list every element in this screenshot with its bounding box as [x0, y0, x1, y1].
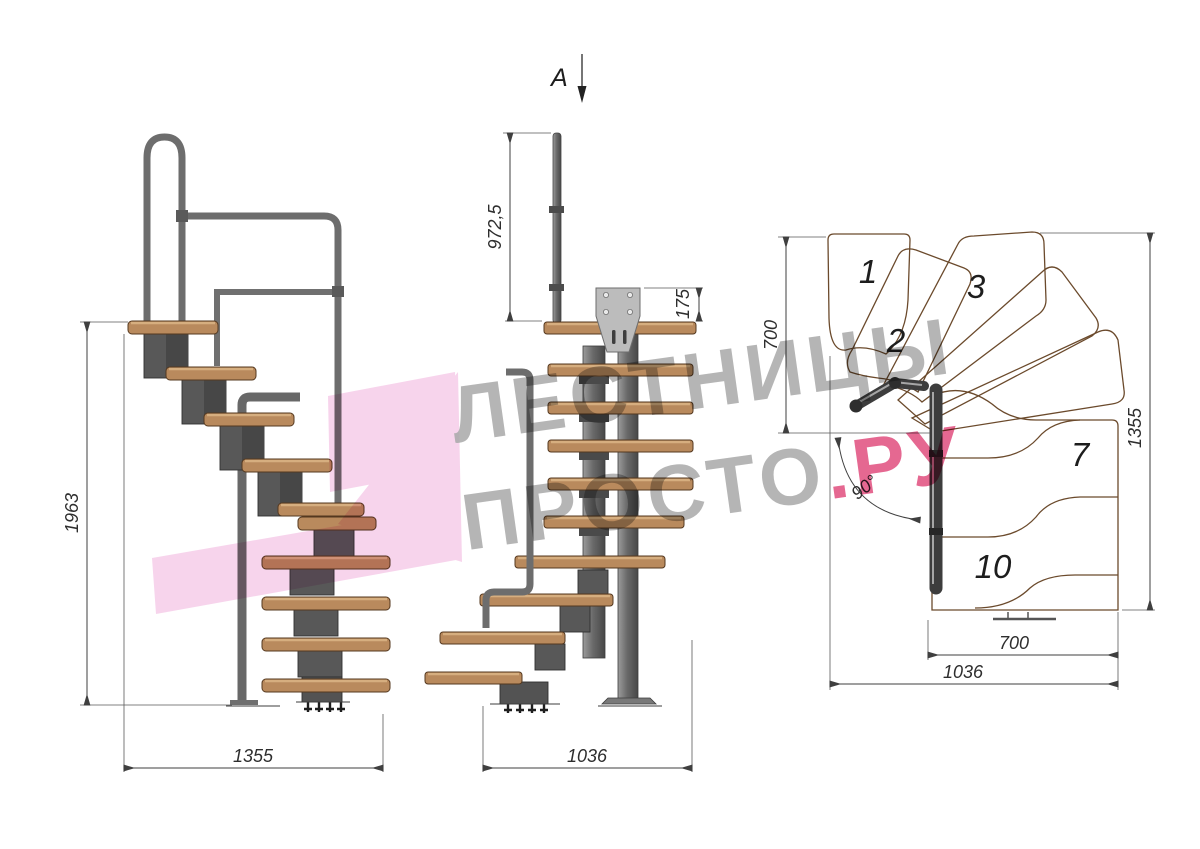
lower-flight-treads [932, 391, 1118, 610]
module [578, 570, 608, 594]
step-number-1: 1 [859, 253, 877, 290]
bracket-hole [627, 309, 632, 314]
section-marker: A [549, 54, 587, 103]
bracket-slot [612, 330, 616, 344]
base-module [500, 682, 548, 704]
bracket-slot [623, 330, 627, 344]
handrail-joint [929, 450, 943, 457]
module [560, 606, 590, 632]
plan-view: 1 2 3 7 10 700 1355 700 1036 90° [761, 232, 1155, 690]
anchor-bolts [308, 702, 341, 712]
step-number-10: 10 [975, 548, 1012, 585]
dim-upper-depth: 700 [761, 320, 781, 350]
side-elevation-view: 1963 1355 [62, 137, 390, 772]
module [290, 569, 334, 595]
tread-divider [932, 420, 1080, 458]
plan-floor-mount [993, 612, 1056, 619]
anchor-bolts [508, 704, 544, 713]
handrail-elbow [856, 383, 924, 406]
step-number-2: 2 [886, 322, 905, 359]
drawing-sheet: 1963 1355 A [0, 0, 1200, 849]
tread [298, 517, 376, 530]
module [535, 644, 565, 670]
dim-width: 1036 [567, 746, 608, 766]
dim-height: 1963 [62, 493, 82, 533]
balustrade-post [553, 133, 561, 323]
post-joint [549, 284, 564, 291]
bracket-hole [603, 309, 608, 314]
handrail-loop [147, 137, 182, 324]
module [298, 651, 342, 677]
bracket-hole [627, 292, 632, 297]
plan-dimensions: 700 1355 700 1036 90° [761, 233, 1155, 690]
handrail-end [850, 400, 863, 413]
fan-tread-5 [912, 330, 1124, 432]
handrail-joint [889, 377, 901, 389]
dim-tread-width: 700 [999, 633, 1029, 653]
dim-post-height: 972,5 [485, 203, 505, 249]
front-elevation-view: A [425, 54, 703, 772]
section-label: A [549, 64, 568, 92]
angle-arc [838, 438, 920, 520]
dim-width: 1355 [233, 746, 274, 766]
section-arrow-head [578, 86, 587, 103]
dim-turn-angle: 90° [847, 471, 881, 504]
column-base [602, 698, 656, 704]
step-number-7: 7 [1071, 436, 1091, 473]
step-number-3: 3 [967, 268, 986, 305]
bracket-hole [603, 292, 608, 297]
rail-clamp [176, 210, 188, 222]
module [294, 610, 338, 636]
rail-base-plate [230, 700, 258, 705]
staircase-drawing: 1963 1355 A [0, 0, 1200, 849]
step-numbers: 1 2 3 7 10 [859, 253, 1091, 585]
dim-total-width: 1036 [943, 662, 984, 682]
dim-bracket-offset: 175 [673, 288, 693, 319]
front-handrail [486, 372, 530, 628]
tread-divider [932, 497, 1118, 537]
post-joint [549, 206, 564, 213]
handrail-joint [929, 528, 943, 535]
fan-tread-3 [884, 232, 1046, 402]
rail-clamp [332, 286, 344, 297]
dim-flight-length: 1355 [1125, 407, 1145, 448]
